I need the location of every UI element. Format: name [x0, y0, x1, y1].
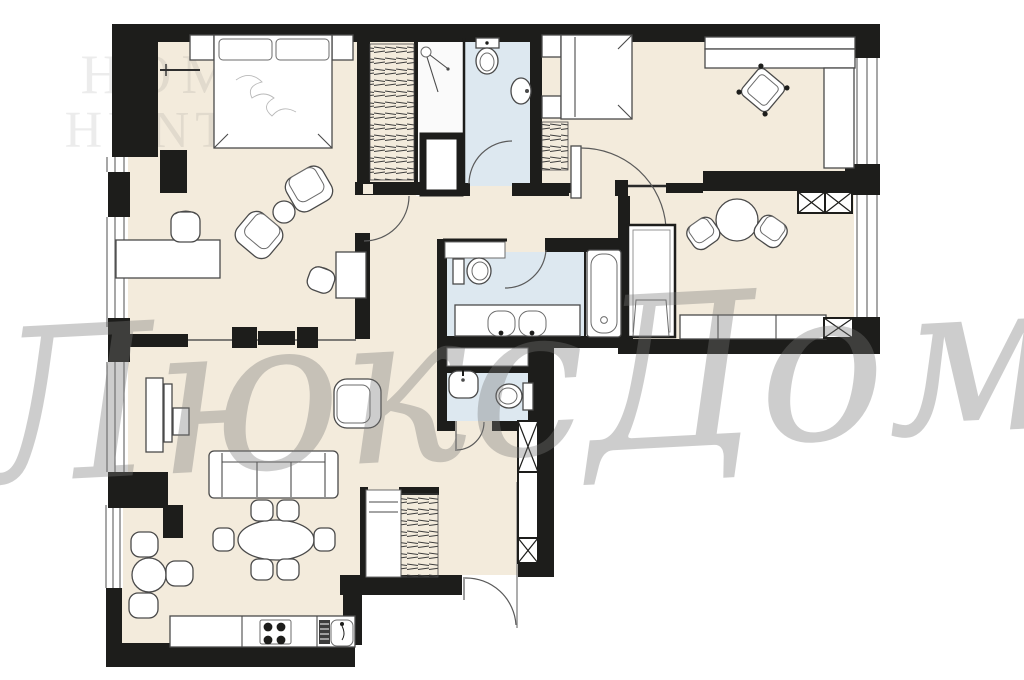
chair	[277, 559, 299, 580]
nightstand	[542, 35, 561, 57]
closet-hanging-rail	[542, 122, 568, 170]
dining-table	[238, 520, 314, 560]
chair	[213, 528, 234, 551]
toilet	[476, 38, 499, 74]
chair	[166, 561, 193, 586]
dish-rack	[319, 620, 330, 644]
desk-chair	[171, 211, 200, 242]
chair	[251, 559, 273, 580]
shaft-box	[798, 192, 825, 213]
floor-plan: HOME HUNTER	[0, 0, 1024, 680]
nightstand	[190, 35, 214, 60]
side-table	[273, 201, 295, 223]
cooktop	[260, 620, 291, 644]
hall-south-wall	[340, 575, 462, 595]
wash-basin	[511, 78, 531, 104]
hanging-rail	[370, 44, 414, 180]
shaft-box	[825, 192, 852, 213]
double-bed	[214, 35, 332, 148]
chair	[131, 532, 158, 557]
shaft-box	[518, 538, 538, 563]
nightstand	[332, 35, 353, 60]
window-bedroom2-right	[854, 58, 880, 164]
round-table	[716, 199, 758, 241]
chair	[129, 593, 158, 618]
floor-plan-page: HOME HUNTER	[0, 0, 1024, 680]
writing-desk	[116, 240, 220, 278]
walk-in-wardrobe	[370, 44, 414, 180]
chair	[314, 528, 335, 551]
bedroom2-west-wall	[530, 42, 542, 183]
window-left-small	[104, 157, 128, 172]
round-table	[132, 558, 166, 592]
single-bed	[561, 35, 632, 119]
nightstand	[542, 96, 561, 118]
kitchen-sink	[331, 620, 353, 646]
kitchen-counter	[170, 616, 355, 647]
bedroom1-pier	[160, 150, 187, 193]
bathroom-shelf	[445, 242, 505, 258]
northwest-column	[112, 42, 158, 157]
bedroom2-door-leaf	[571, 146, 581, 198]
bedroom2-south-wall	[703, 171, 857, 191]
shower-enclosure	[423, 136, 460, 193]
